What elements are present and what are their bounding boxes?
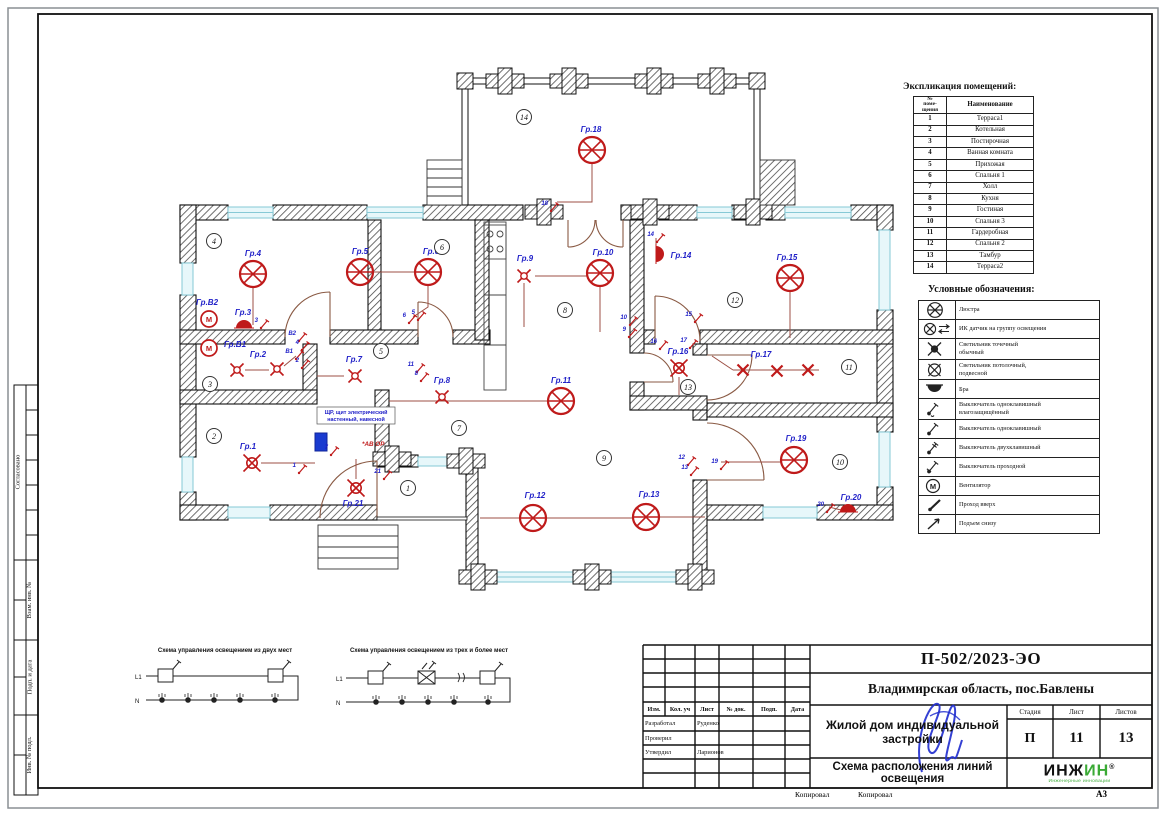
fixture-Гр.18: Гр.18 <box>579 125 605 163</box>
table-row: 11Гардеробная <box>914 228 1034 239</box>
room-number: 9 <box>597 451 612 466</box>
switch-pass-icon <box>919 458 956 476</box>
svg-text:11: 11 <box>845 363 852 372</box>
svg-text:13: 13 <box>681 465 688 471</box>
room-index: 10 <box>914 216 947 227</box>
fixture-label: Гр.20 <box>841 493 862 502</box>
logo-reg-mark: ® <box>1109 764 1115 771</box>
stamp-name: Ларионов <box>697 745 751 759</box>
room-number: 3 <box>203 377 218 392</box>
company-logo: ИНЖИН® Инженерные инновации <box>1007 759 1152 788</box>
legend-table: ЛюстраИК датчик на группу освещенияСвети… <box>918 300 1100 534</box>
legend-row: Выключатель двухклавишный <box>918 439 1100 458</box>
lamps <box>373 695 491 704</box>
fixture-label: Гр.5 <box>352 247 369 256</box>
sheets-value: 13 <box>1100 719 1152 758</box>
sheet-value: 11 <box>1053 719 1100 758</box>
room-number: 14 <box>517 110 532 125</box>
room-number: 13 <box>681 380 696 395</box>
legend-label: Бра <box>956 384 972 396</box>
side-label-podp: Подп. и дата <box>26 640 38 715</box>
fixture-Гр.14: Гр.14 <box>656 244 692 264</box>
fixture-Гр.13: Гр.13 <box>633 490 660 530</box>
room-name: Котельная <box>947 125 1034 136</box>
explication-col-name: Наименование <box>947 97 1034 114</box>
legend-label: Выключатель проходной <box>956 461 1029 473</box>
room-number: 5 <box>374 344 389 359</box>
svg-text:15: 15 <box>685 312 692 318</box>
room-index: 4 <box>914 148 947 159</box>
room-number: 6 <box>435 240 450 255</box>
logo-text-2: ИН <box>1084 762 1109 779</box>
room-index: 5 <box>914 159 947 170</box>
table-row: 8Кухня <box>914 193 1034 204</box>
room-number: 8 <box>558 303 573 318</box>
svg-text:9: 9 <box>623 327 627 333</box>
schematic-two-places: Схема управления освещением из двух мест… <box>130 640 320 718</box>
fixture-label: Гр.2 <box>250 350 267 359</box>
room-number: 10 <box>833 455 848 470</box>
svg-text:3: 3 <box>255 318 259 324</box>
fixture-Гр.8: Гр.8 <box>434 376 451 404</box>
rise-below-icon <box>919 515 956 533</box>
fixture-label: Гр.19 <box>786 434 807 443</box>
switch-mark: 7 <box>325 445 339 456</box>
switch-mark: 8 <box>415 371 429 382</box>
room-number: 12 <box>728 293 743 308</box>
legend-row: Выключатель проходной <box>918 458 1100 477</box>
room-name: Гардеробная <box>947 228 1034 239</box>
fixture-Гр.4: Гр.4 <box>240 249 266 287</box>
terrace-outline <box>462 78 760 205</box>
svg-text:12: 12 <box>731 296 739 305</box>
stamp-role: Разработал <box>645 716 695 730</box>
stamp-col-header: Дата <box>785 702 810 716</box>
table-row: 13Тамбур <box>914 250 1034 261</box>
panel-label: ЩР, щит электрический <box>325 409 388 416</box>
room-index: 13 <box>914 250 947 261</box>
l1-label: L1 <box>336 677 343 683</box>
stamp-role: Проверил <box>645 731 695 745</box>
svg-text:9: 9 <box>602 454 606 463</box>
ir-sensor-icon <box>919 320 956 338</box>
legend-label: Вентилятор <box>956 480 994 492</box>
legend-title: Условные обозначения: <box>928 284 1108 295</box>
stamp-name: Руденко <box>697 716 751 730</box>
wire <box>712 356 733 370</box>
table-row: 1Терраса1 <box>914 114 1034 125</box>
legend-row: Подъем снизу <box>918 515 1100 534</box>
table-row: 14Терраса2 <box>914 262 1034 273</box>
table-row: 2Котельная <box>914 125 1034 136</box>
svg-text:М: М <box>930 482 936 491</box>
copied-by-2: Копировал <box>858 790 893 799</box>
svg-text:7: 7 <box>325 445 329 451</box>
room-name: Прихожая <box>947 159 1034 170</box>
legend-label: Подъем снизу <box>956 518 999 530</box>
room-name: Кухня <box>947 193 1034 204</box>
pass-up-icon <box>919 496 956 514</box>
room-index: 7 <box>914 182 947 193</box>
switch-mark: 5 <box>412 310 426 321</box>
switch-mark: 14 <box>647 232 665 243</box>
svg-text:19: 19 <box>711 459 718 465</box>
fixture-Гр.10: Гр.10 <box>587 248 614 286</box>
stamp-name <box>697 731 751 745</box>
stamp-col-header: Кол. уч <box>665 702 695 716</box>
n-label: N <box>336 701 340 707</box>
legend-row: Выключатель одноклавишный <box>918 420 1100 439</box>
svg-text:11: 11 <box>408 362 415 368</box>
wire <box>284 356 296 366</box>
chandelier-icon <box>919 301 956 319</box>
legend-row: Проход вверх <box>918 496 1100 515</box>
fixture-Гр.7: Гр.7 <box>346 355 363 383</box>
switch-single-icon <box>919 420 956 438</box>
stamp-col-header: Подп. <box>753 702 785 716</box>
switch-mark: 1 <box>293 463 307 474</box>
svg-text:2: 2 <box>295 358 300 364</box>
room-number: 1 <box>401 481 416 496</box>
switch-mark: 19 <box>711 459 729 470</box>
fixture-label: Гр.15 <box>777 253 798 262</box>
explication-title: Экспликация помещений: <box>903 82 1053 92</box>
table-row: 9Гостиная <box>914 205 1034 216</box>
fixture-label: Гр.17 <box>751 350 772 359</box>
fixture-label: Гр.14 <box>671 251 692 260</box>
svg-text:14: 14 <box>520 113 528 122</box>
table-row: 6Спальня 1 <box>914 171 1034 182</box>
switch-mark: 13 <box>681 465 699 476</box>
legend-label: Люстра <box>956 304 983 316</box>
svg-text:4: 4 <box>212 237 216 246</box>
room-number: 4 <box>207 234 222 249</box>
room-name: Спальня 3 <box>947 216 1034 227</box>
svg-text:6: 6 <box>403 313 407 319</box>
svg-text:6: 6 <box>440 243 444 252</box>
logo-subtitle: Инженерные инновации <box>1007 779 1152 784</box>
table-row: 12Спальня 2 <box>914 239 1034 250</box>
stamp-col-header: Лист <box>695 702 719 716</box>
svg-text:1: 1 <box>293 463 297 469</box>
svg-text:14: 14 <box>647 232 654 238</box>
legend-row: Светильник точечный обычный <box>918 339 1100 360</box>
fixture-label: Гр.21 <box>343 499 364 508</box>
legend-label: ИК датчик на группу освещения <box>956 323 1049 335</box>
explication-col-num: № поме- щения <box>914 97 947 114</box>
schematic-three-places: Схема управления освещением из трех и бо… <box>332 640 527 720</box>
room-number: 11 <box>842 360 857 375</box>
stamp-col-header: № док. <box>719 702 753 716</box>
svg-text:В2: В2 <box>288 331 296 337</box>
svg-text:18: 18 <box>541 201 548 207</box>
table-row: 3Постирочная <box>914 137 1034 148</box>
table-row: 4Ванная комната <box>914 148 1034 159</box>
wire <box>557 163 592 202</box>
room-index: 12 <box>914 239 947 250</box>
format-label: А3 <box>1096 789 1107 799</box>
fixture-Гр.9: Гр.9 <box>517 254 534 283</box>
spot-light-icon <box>919 339 956 359</box>
svg-text:3: 3 <box>207 380 212 389</box>
room-index: 14 <box>914 262 947 273</box>
legend-row: ИК датчик на группу освещения <box>918 320 1100 339</box>
legend-label: Выключатель одноклавишный влагозащищённы… <box>956 399 1044 419</box>
legend-label: Выключатель двухклавишный <box>956 442 1043 454</box>
fixture-label: Гр.13 <box>639 490 660 499</box>
terrace1-edge <box>377 517 467 520</box>
svg-text:17: 17 <box>680 338 687 344</box>
copied-by-1: Копировал <box>795 790 830 799</box>
switch-mark: 21 <box>373 469 392 480</box>
panel-note: *АВ ОР <box>362 441 385 448</box>
stage-label: Стадия <box>1007 705 1053 719</box>
room-index: 9 <box>914 205 947 216</box>
stamp-role: Утвердил <box>645 745 695 759</box>
wire <box>413 285 428 317</box>
legend-row: Выключатель одноклавишный влагозащищённы… <box>918 399 1100 420</box>
svg-text:13: 13 <box>684 383 692 392</box>
svg-text:4: 4 <box>295 340 300 346</box>
room-index: 2 <box>914 125 947 136</box>
room-name: Постирочная <box>947 137 1034 148</box>
room-index: 11 <box>914 228 947 239</box>
n-label: N <box>135 699 139 705</box>
switch-mark: В1 <box>285 349 304 360</box>
room-name: Терраса2 <box>947 262 1034 273</box>
room-name: Гостиная <box>947 205 1034 216</box>
panel-label: настенный, навесной <box>327 416 385 423</box>
svg-text:М: М <box>206 344 212 353</box>
fixture-label: Гр.1 <box>240 442 257 451</box>
svg-text:20: 20 <box>816 502 824 508</box>
legend-row: Люстра <box>918 301 1100 320</box>
table-row: 10Спальня 3 <box>914 216 1034 227</box>
fixture-label: Гр.11 <box>551 376 572 385</box>
fixture-Гр.1: Гр.1 <box>240 442 261 472</box>
sconce-icon <box>919 380 956 398</box>
room-index: 8 <box>914 193 947 204</box>
fixture-Гр.21: Гр.21 <box>343 480 365 509</box>
room-number: 2 <box>207 429 222 444</box>
svg-text:2: 2 <box>212 432 216 441</box>
sheet-label: Лист <box>1053 705 1100 719</box>
fixture-label: Гр.16 <box>668 347 689 356</box>
legend-row: Бра <box>918 380 1100 399</box>
svg-text:21: 21 <box>373 469 381 475</box>
room-number: 7 <box>452 421 467 436</box>
fixture-Гр.12: Гр.12 <box>520 491 546 531</box>
drawing-sheet: Согласовано Взам. инв. № Подп. и дата Ин… <box>0 0 1166 816</box>
fixture-symbol <box>772 366 783 377</box>
svg-text:1: 1 <box>406 484 410 493</box>
fan-icon: М <box>919 477 956 495</box>
svg-text:10: 10 <box>836 458 844 467</box>
lamps <box>159 693 278 702</box>
switch-mark: 16 <box>650 339 668 350</box>
room-index: 6 <box>914 171 947 182</box>
fixture-Гр.11: Гр.11 <box>548 376 574 414</box>
doc-number: П-502/2023-ЭО <box>812 646 1150 672</box>
table-row: 7Холл <box>914 182 1034 193</box>
fixture-label: Гр.18 <box>581 125 602 134</box>
svg-text:В1: В1 <box>285 349 293 355</box>
fixture-label: Гр.3 <box>235 308 252 317</box>
stage-value: П <box>1007 719 1053 758</box>
fixture-Гр.В1: МГр.В1 <box>201 340 247 356</box>
legend-label: Проход вверх <box>956 499 998 511</box>
svg-text:12: 12 <box>678 455 685 461</box>
table-row: 5Прихожая <box>914 159 1034 170</box>
legend-label: Светильник потолочный, подвесной <box>956 360 1029 380</box>
schematic-title: Схема управления освещением из двух мест <box>158 648 292 654</box>
room-name: Ванная комната <box>947 148 1034 159</box>
fixture-label: Гр.12 <box>525 491 546 500</box>
room-name: Спальня 2 <box>947 239 1034 250</box>
pendant-light-icon <box>919 360 956 380</box>
legend-label: Светильник точечный обычный <box>956 339 1021 359</box>
legend-row: Светильник потолочный, подвесной <box>918 360 1100 381</box>
room-index: 1 <box>914 114 947 125</box>
floor-plan: Гр.4Гр.5Гр.6Гр.10Гр.15Гр.18Гр.11Гр.12Гр.… <box>165 55 905 595</box>
stamp-col-header: Изм. <box>643 702 665 716</box>
fixture-label: Гр.В1 <box>224 340 247 349</box>
fixture-label: Гр.В2 <box>196 298 219 307</box>
fixture-label: Гр.10 <box>593 248 614 257</box>
switch-mark: 3 <box>255 318 269 329</box>
side-label-inv: Инв. № подл. <box>26 715 38 795</box>
fixture-Гр.2: Гр.2 <box>231 350 267 377</box>
room-name: Тамбур <box>947 250 1034 261</box>
fixture-label: Гр.8 <box>434 376 451 385</box>
room-name: Спальня 1 <box>947 171 1034 182</box>
legend-label: Выключатель одноклавишный <box>956 423 1044 435</box>
svg-text:16: 16 <box>650 339 657 345</box>
fixture-label: Гр.7 <box>346 355 363 364</box>
room-name: Холл <box>947 182 1034 193</box>
legend-row: МВентилятор <box>918 477 1100 496</box>
side-label-vzam: Взам. инв. № <box>26 560 38 640</box>
sheets-label: Листов <box>1100 705 1152 719</box>
svg-text:10: 10 <box>620 315 627 321</box>
explication-table: № поме- щения Наименование 1Терраса12Кот… <box>913 96 1034 274</box>
object-name: Жилой дом индивидуальной застройки <box>812 706 1013 757</box>
l1-label: L1 <box>135 675 142 681</box>
sheet-title: Схема расположения линий освещения <box>812 759 1013 787</box>
room-name: Терраса1 <box>947 114 1034 125</box>
switch-double-icon <box>919 439 956 457</box>
fixture-Гр.15: Гр.15 <box>777 253 803 291</box>
switch-waterproof-icon <box>919 399 956 419</box>
svg-text:5: 5 <box>379 347 383 356</box>
schematic-title: Схема управления освещением из трех и бо… <box>350 647 508 654</box>
location: Владимирская область, пос.Бавлены <box>812 674 1150 704</box>
svg-text:М: М <box>206 315 212 324</box>
side-label-agreed: Согласовано <box>15 385 27 560</box>
fixture-Гр.19: Гр.19 <box>781 434 807 473</box>
fixture-Гр.В2: МГр.В2 <box>196 298 219 327</box>
logo-text-1: ИНЖ <box>1044 762 1085 779</box>
fixture-symbol <box>271 363 284 376</box>
fixture-label: Гр.9 <box>517 254 534 263</box>
room-index: 3 <box>914 137 947 148</box>
svg-text:8: 8 <box>563 306 567 315</box>
fixture-label: Гр.4 <box>245 249 262 258</box>
fixture-Гр.3: Гр.3 <box>234 308 254 328</box>
fixture-Гр.17: Гр.17 <box>738 350 772 376</box>
